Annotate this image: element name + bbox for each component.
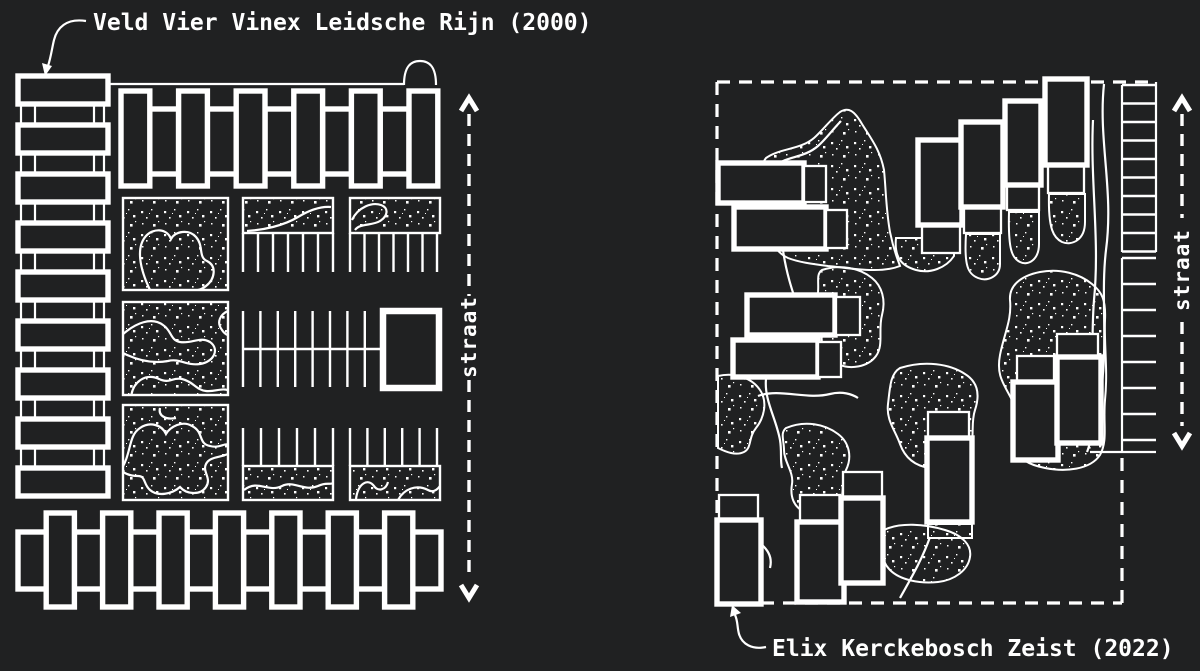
building (843, 472, 882, 498)
building (922, 225, 960, 253)
building (1005, 101, 1041, 185)
building (836, 297, 860, 335)
building (1057, 334, 1098, 357)
street-arrow-left: straat (457, 98, 481, 598)
garden-block (243, 466, 333, 500)
building (961, 122, 1003, 207)
building (1045, 79, 1087, 165)
arrow-down-icon (1174, 433, 1190, 446)
building (928, 412, 969, 438)
right-plan: straat Elix Kerckebosch Zeist (2022) (717, 79, 1194, 662)
building (718, 163, 804, 203)
building (841, 498, 883, 583)
building (800, 495, 840, 522)
garden-block (123, 405, 228, 500)
street-arrow-right: straat (1170, 98, 1194, 446)
building (734, 207, 826, 249)
building (797, 522, 844, 602)
building (1048, 165, 1084, 193)
building (818, 342, 841, 377)
site-plan-diagram: straat Veld Vier Vinex Leidsche Rijn (20… (0, 0, 1200, 671)
garden-block (350, 198, 440, 233)
left-plan-north-row (108, 61, 438, 186)
garden-block (243, 198, 333, 233)
building (719, 495, 758, 520)
building (1007, 185, 1039, 210)
arrow-down-icon (461, 585, 477, 598)
building (804, 166, 826, 202)
left-plan-title: Veld Vier Vinex Leidsche Rijn (2000) (93, 10, 592, 36)
left-plan: straat Veld Vier Vinex Leidsche Rijn (20… (18, 10, 592, 607)
right-plan-title: Elix Kerckebosch Zeist (2022) (772, 636, 1174, 662)
left-plan-south-row (18, 513, 441, 607)
building (1057, 357, 1101, 443)
left-plan-label: Veld Vier Vinex Leidsche Rijn (2000) (42, 10, 592, 76)
street-label-right: straat (1170, 229, 1194, 311)
building (927, 438, 972, 522)
building (918, 140, 962, 225)
site-plan-comparison: straat Veld Vier Vinex Leidsche Rijn (20… (0, 0, 1200, 671)
street-label-left: straat (457, 296, 481, 378)
left-plan-west-ladder-block (18, 76, 108, 496)
arrow-up-icon (461, 98, 477, 111)
building (717, 520, 761, 604)
building (1013, 382, 1058, 460)
building (1017, 356, 1054, 382)
building (383, 311, 439, 388)
left-plan-courtyard-grid (121, 198, 440, 500)
building (733, 340, 818, 377)
building (747, 295, 835, 335)
right-plan-label: Elix Kerckebosch Zeist (2022) (730, 605, 1174, 662)
building (826, 210, 847, 248)
building (964, 207, 1001, 233)
arrow-up-icon (1174, 98, 1190, 111)
